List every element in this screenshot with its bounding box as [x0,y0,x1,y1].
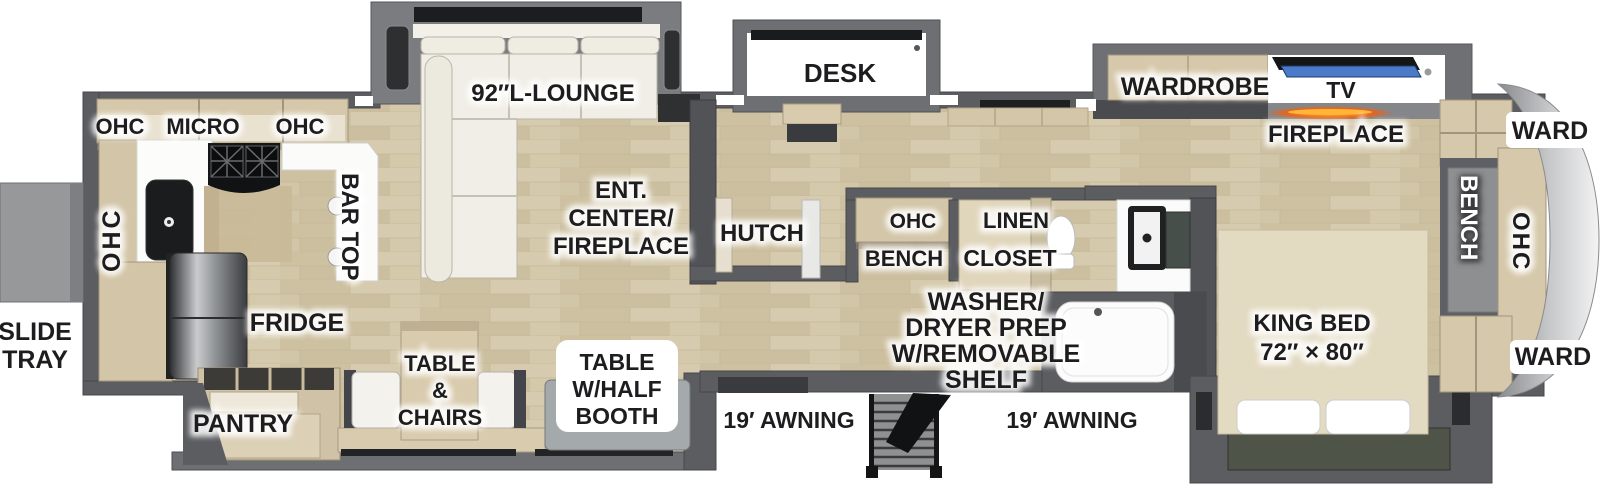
svg-text:TABLE: TABLE [404,351,476,376]
svg-text:TABLE: TABLE [580,349,655,375]
svg-text:FRIDGE: FRIDGE [250,309,344,337]
svg-text:OHC: OHC [98,207,126,272]
svg-text:TRAY: TRAY [2,346,68,374]
svg-text:MICRO: MICRO [166,114,239,139]
svg-text:CLOSET: CLOSET [963,245,1056,271]
svg-text:BENCH: BENCH [865,246,943,271]
svg-text:FIREPLACE: FIREPLACE [1268,121,1404,148]
svg-text:KING BED: KING BED [1253,310,1370,337]
svg-text:OHC: OHC [96,114,145,139]
svg-text:SLIDE: SLIDE [0,318,72,346]
svg-text:WARD: WARD [1512,117,1588,145]
svg-text:W/REMOVABLE: W/REMOVABLE [892,340,1080,368]
svg-text:FIREPLACE: FIREPLACE [553,233,689,260]
svg-text:DESK: DESK [804,58,876,88]
svg-text:ENT.: ENT. [595,177,647,204]
svg-text:19′ AWNING: 19′ AWNING [723,407,854,433]
svg-text:PANTRY: PANTRY [193,410,293,438]
svg-text:OHC: OHC [890,210,937,233]
svg-text:BAR TOP: BAR TOP [336,173,363,281]
svg-text:LINEN: LINEN [983,208,1049,233]
svg-text:OHC: OHC [1507,212,1534,271]
svg-text:92″L-LOUNGE: 92″L-LOUNGE [471,80,635,107]
svg-text:BOOTH: BOOTH [575,403,658,429]
svg-text:SHELF: SHELF [945,366,1027,394]
svg-text:W/HALF: W/HALF [572,376,661,402]
svg-text:BENCH: BENCH [1455,175,1482,260]
svg-text:19′ AWNING: 19′ AWNING [1006,407,1137,433]
svg-text:WARDROBE: WARDROBE [1121,73,1270,101]
svg-text:72″ × 80″: 72″ × 80″ [1260,339,1364,366]
svg-text:TV: TV [1326,77,1356,103]
svg-text:&: & [432,378,448,403]
svg-text:CHAIRS: CHAIRS [398,405,482,430]
svg-text:WARD: WARD [1515,343,1591,371]
svg-text:WASHER/: WASHER/ [928,288,1045,316]
svg-text:OHC: OHC [276,114,325,139]
svg-text:HUTCH: HUTCH [720,220,804,247]
svg-text:CENTER/: CENTER/ [568,205,674,232]
svg-text:DRYER PREP: DRYER PREP [905,314,1067,342]
